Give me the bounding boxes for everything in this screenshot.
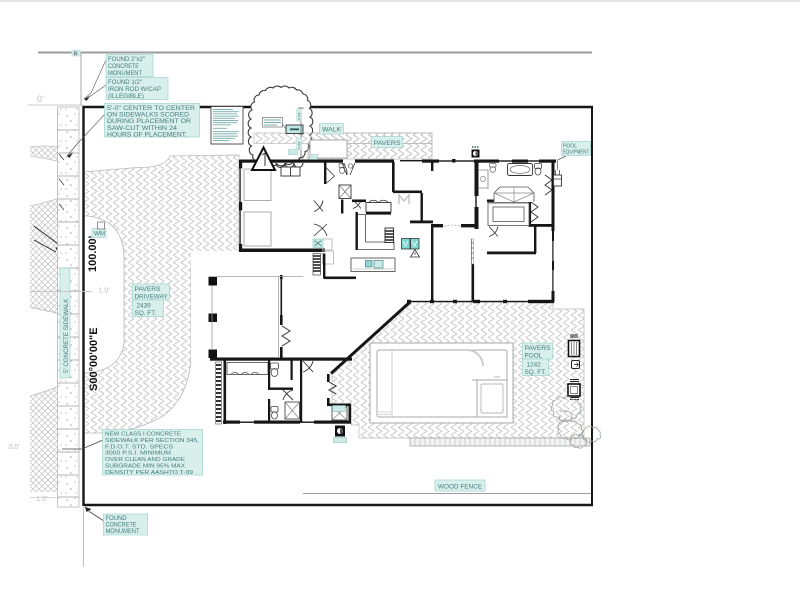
svg-text:1.0': 1.0' [98, 286, 110, 295]
svg-text:WOOD FENCE: WOOD FENCE [438, 484, 482, 491]
svg-text:PAVERS: PAVERS [525, 345, 551, 352]
svg-text:PAVERS: PAVERS [374, 140, 401, 147]
svg-text:SIDEWALK PER SECTION 345,: SIDEWALK PER SECTION 345, [105, 438, 199, 444]
svg-text:FOUND 2"x2": FOUND 2"x2" [108, 56, 145, 63]
svg-text:S00°00'00"E: S00°00'00"E [88, 327, 100, 391]
svg-text:100.00': 100.00' [87, 235, 99, 272]
svg-text:EQUIPMENT: EQUIPMENT [563, 150, 590, 156]
svg-text:OVER CLEAN AND GRADE: OVER CLEAN AND GRADE [105, 457, 185, 463]
svg-text:F.D.O.T. STD. SPECS: F.D.O.T. STD. SPECS [105, 444, 173, 450]
svg-text:MONUMENT: MONUMENT [106, 529, 140, 535]
svg-text:R: R [74, 52, 78, 58]
svg-text:PAVERS: PAVERS [135, 286, 161, 293]
svg-text:CONCRETE: CONCRETE [108, 63, 139, 70]
svg-text:DRIVEWAY: DRIVEWAY [135, 293, 169, 300]
svg-text:(ILLEGIBLE): (ILLEGIBLE) [108, 93, 144, 100]
svg-text:DENSITY PER AASHTO T-99: DENSITY PER AASHTO T-99 [105, 470, 193, 476]
svg-text:4.53': 4.53' [296, 141, 301, 150]
svg-text:FOUND: FOUND [106, 516, 128, 522]
svg-text:1.0': 1.0' [36, 494, 48, 503]
svg-text:POOL: POOL [525, 352, 543, 359]
svg-text:SQ. FT.: SQ. FT. [135, 310, 157, 317]
svg-text:SQ. FT.: SQ. FT. [525, 369, 547, 376]
svg-text:2439: 2439 [137, 302, 152, 309]
svg-text:CONCRETE: CONCRETE [106, 523, 137, 529]
svg-text:SUBGRADE MIN 95% MAX: SUBGRADE MIN 95% MAX [105, 464, 185, 470]
svg-text:3000 P.S.I. MINIMUM: 3000 P.S.I. MINIMUM [105, 451, 171, 457]
svg-text:IRON ROD W/CAP: IRON ROD W/CAP [108, 86, 161, 93]
svg-text:1242: 1242 [527, 361, 542, 368]
svg-text:WALK: WALK [322, 127, 341, 134]
svg-text:MONUMENT: MONUMENT [108, 70, 142, 77]
svg-text:0': 0' [37, 94, 44, 104]
svg-text:NEW CLASS I CONCRETE: NEW CLASS I CONCRETE [105, 432, 181, 438]
svg-text:HOURS OF PLACEMENT.: HOURS OF PLACEMENT. [107, 131, 187, 138]
svg-text:4.63': 4.63' [296, 112, 301, 121]
svg-text:FOUND 1/2": FOUND 1/2" [108, 79, 142, 86]
svg-text:5' CONCRETE SIDEWALK: 5' CONCRETE SIDEWALK [63, 298, 70, 373]
svg-text:3.0': 3.0' [8, 442, 20, 451]
